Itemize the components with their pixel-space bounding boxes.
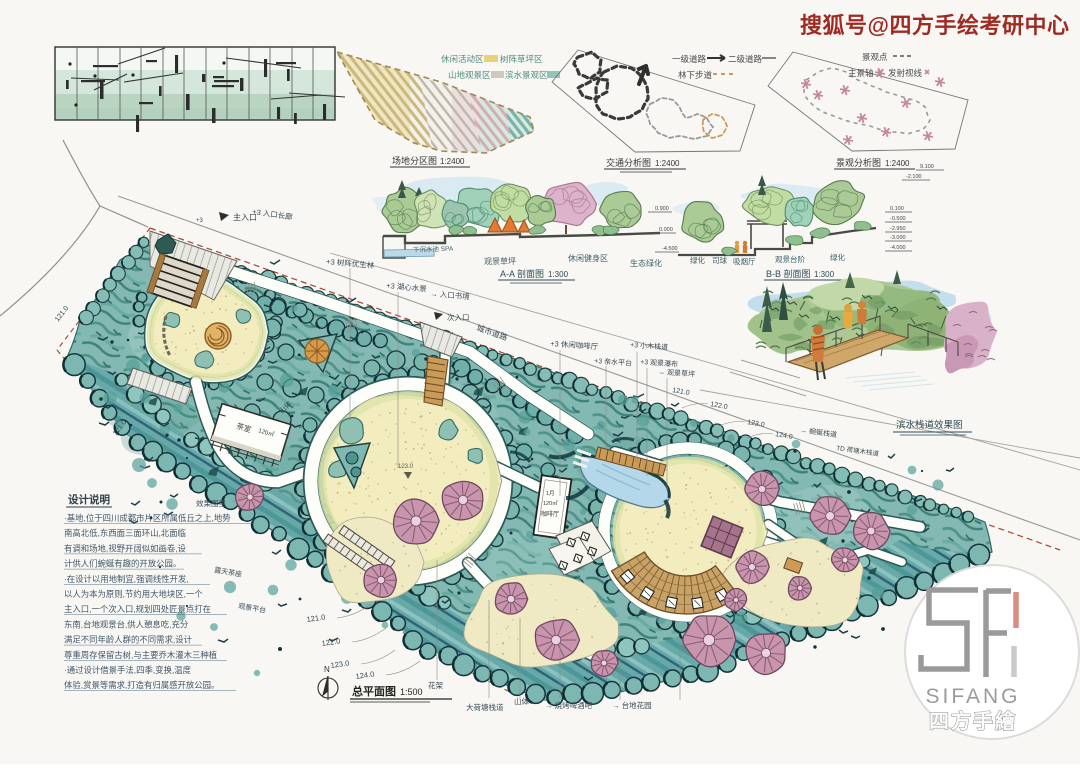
- svg-text:景观点: 景观点: [862, 52, 888, 62]
- svg-text:南高北低,东西面三面环山,北面临: 南高北低,东西面三面环山,北面临: [64, 528, 186, 538]
- svg-text:东南,台地观景台,供人憩息吃,充分: 东南,台地观景台,供人憩息吃,充分: [64, 619, 189, 629]
- svg-text:绿化: 绿化: [690, 255, 705, 265]
- svg-text:滨水栈道效果图: 滨水栈道效果图: [896, 419, 963, 431]
- svg-text:0.000: 0.000: [659, 227, 673, 233]
- svg-text:1月: 1月: [546, 490, 555, 497]
- svg-text:吸烟厅: 吸烟厅: [733, 257, 756, 266]
- svg-text:→ 台地花园: → 台地花园: [612, 700, 652, 710]
- svg-text:+3: +3: [196, 218, 204, 224]
- svg-text:→ 烧烤啤酒吧: → 烧烤啤酒吧: [545, 700, 593, 710]
- svg-text:123.0: 123.0: [398, 464, 414, 470]
- svg-text:·基地,位于四川成都市片区所属低丘之上,地势: ·基地,位于四川成都市片区所属低丘之上,地势: [64, 513, 231, 523]
- svg-text:A-A 剖面图: A-A 剖面图: [500, 268, 544, 279]
- svg-text:-2.100: -2.100: [906, 174, 922, 180]
- svg-text:计供人们蜿蜒有趣的开放公园。: 计供人们蜿蜒有趣的开放公园。: [64, 559, 181, 569]
- svg-text:生态绿化: 生态绿化: [630, 258, 662, 268]
- svg-text:尊重周存保留古树,与主要乔木灌木三种植: 尊重周存保留古树,与主要乔木灌木三种植: [64, 650, 218, 660]
- svg-text:-2.950: -2.950: [890, 226, 906, 232]
- svg-text:交通分析图: 交通分析图: [606, 157, 651, 168]
- svg-text:1:500: 1:500: [400, 687, 423, 697]
- svg-text:咖啡厅: 咖啡厅: [541, 510, 559, 518]
- svg-text:1:2400: 1:2400: [655, 159, 680, 168]
- svg-text:观景台阶: 观景台阶: [775, 254, 805, 264]
- svg-text:120㎡: 120㎡: [543, 499, 558, 507]
- svg-text:滨水景观区: 滨水景观区: [505, 70, 548, 80]
- svg-text:场地分区图: 场地分区图: [392, 155, 437, 166]
- svg-text:主入口,一个次入口,规划四处匠景点打在: 主入口,一个次入口,规划四处匠景点打在: [64, 604, 211, 614]
- svg-text:1:300: 1:300: [814, 270, 835, 279]
- svg-text:发射视线: 发射视线: [888, 68, 923, 78]
- svg-text:山地观景区: 山地观景区: [448, 70, 491, 80]
- svg-text:-4.000: -4.000: [890, 245, 906, 251]
- svg-text:二级道路: 二级道路: [728, 54, 763, 64]
- svg-text:1:2400: 1:2400: [885, 159, 910, 168]
- svg-text:-3.000: -3.000: [890, 235, 906, 241]
- svg-text:休闲健身区: 休闲健身区: [568, 253, 608, 263]
- svg-text:山体: 山体: [514, 696, 529, 706]
- svg-text:0.100: 0.100: [890, 206, 904, 212]
- svg-text:司球: 司球: [712, 255, 727, 265]
- svg-text:花架: 花架: [428, 680, 443, 690]
- svg-text:效果图里: 效果图里: [196, 498, 226, 508]
- svg-text:总平面图: 总平面图: [352, 684, 396, 698]
- svg-text:设计说明: 设计说明: [68, 493, 110, 506]
- svg-text:四方手繪: 四方手繪: [929, 709, 1017, 733]
- svg-text:景观分析图: 景观分析图: [836, 157, 881, 168]
- svg-text:有调和场地,视野开阔似如画卷,设: 有调和场地,视野开阔似如画卷,设: [64, 543, 187, 553]
- svg-text:林下步道: 林下步道: [678, 70, 713, 80]
- svg-text:体验,赏景等需求,打造有归属感开放公园。: 体验,赏景等需求,打造有归属感开放公园。: [64, 680, 219, 690]
- svg-text:休闲活动区: 休闲活动区: [441, 54, 484, 64]
- svg-text:9.100: 9.100: [920, 164, 934, 170]
- svg-text:树阵草坪区: 树阵草坪区: [500, 54, 543, 64]
- svg-text:1:300: 1:300: [548, 270, 569, 279]
- svg-text:大荷塘栈道: 大荷塘栈道: [466, 702, 504, 712]
- svg-text:绿化: 绿化: [830, 252, 845, 262]
- svg-text:N: N: [324, 665, 330, 674]
- svg-text:以人为本为原则,节约用大地块区,一个: 以人为本为原则,节约用大地块区,一个: [64, 589, 203, 599]
- svg-text:次入口: 次入口: [447, 312, 470, 322]
- svg-text:观景草坪: 观景草坪: [484, 256, 516, 266]
- svg-text:满足不同年龄人群的不同需求,设计: 满足不同年龄人群的不同需求,设计: [64, 635, 193, 645]
- svg-text:SIFANG: SIFANG: [925, 685, 1020, 708]
- svg-text:0.900: 0.900: [655, 206, 669, 212]
- svg-text:搜狐号@四方手绘考研中心: 搜狐号@四方手绘考研中心: [800, 13, 1069, 38]
- svg-text:·在设计以用地制宜,强调线性开发,: ·在设计以用地制宜,强调线性开发,: [64, 574, 189, 584]
- svg-text:1:2400: 1:2400: [440, 157, 465, 166]
- svg-text:B-B 剖面图: B-B 剖面图: [766, 268, 811, 279]
- svg-text:·通过设计借景手法,四季,变换,温度: ·通过设计借景手法,四季,变换,温度: [64, 665, 192, 675]
- svg-text:主景轴: 主景轴: [848, 68, 874, 78]
- svg-text:-0.500: -0.500: [890, 216, 906, 222]
- svg-text:一级道路: 一级道路: [672, 54, 707, 64]
- svg-text:-4.500: -4.500: [662, 246, 678, 252]
